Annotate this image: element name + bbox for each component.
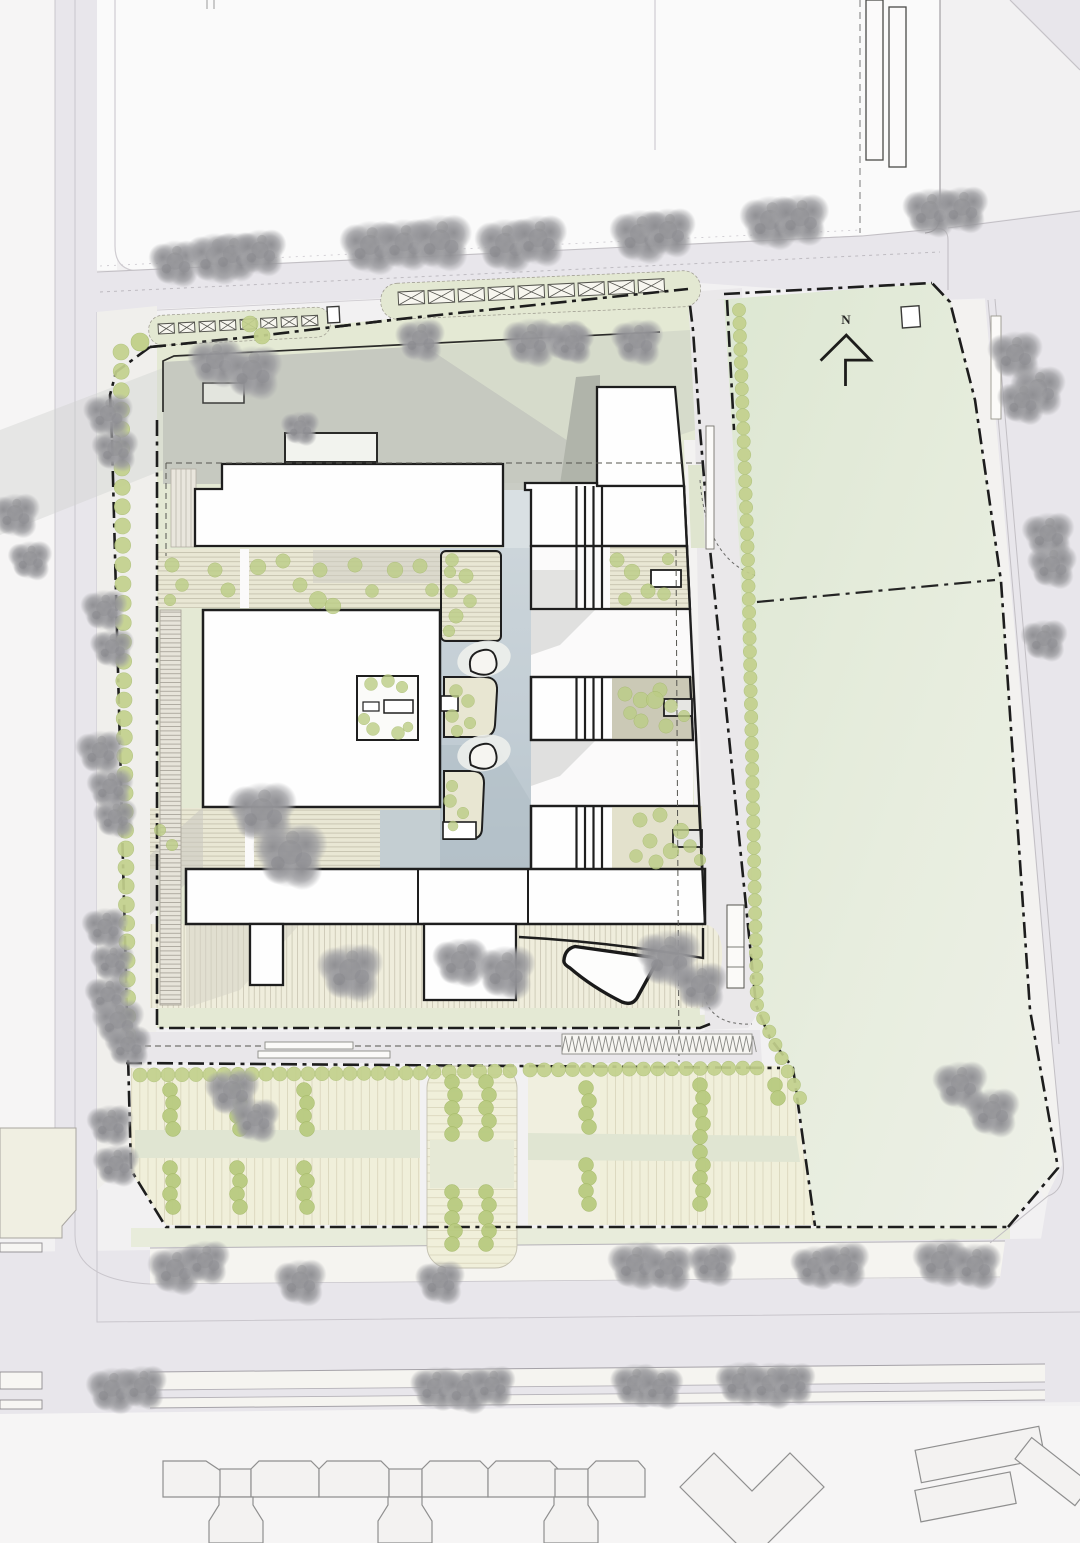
svg-text:N: N [841, 312, 851, 327]
